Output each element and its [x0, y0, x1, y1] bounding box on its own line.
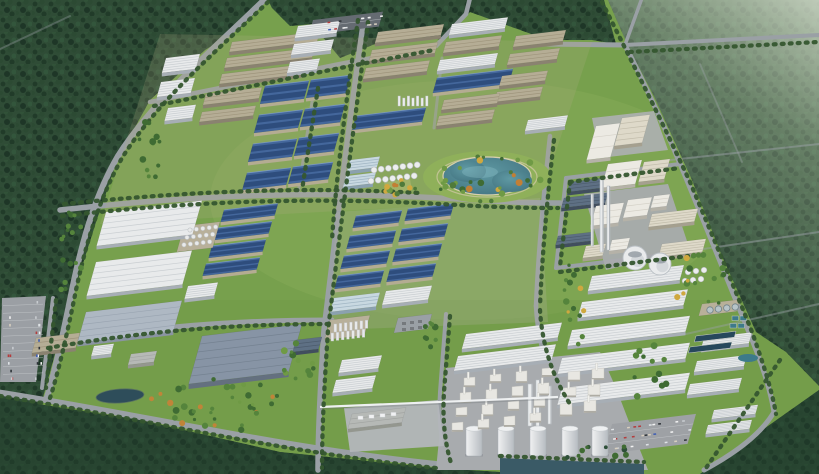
lake-park [423, 151, 551, 203]
d-annex [91, 344, 114, 360]
lake-sparkle [462, 166, 498, 178]
aerial-scene-canvas [0, 0, 819, 474]
small-pond [738, 354, 758, 362]
cooling-tower [623, 246, 647, 270]
industrial-park-render [0, 0, 819, 474]
cooling-tower [649, 253, 671, 275]
